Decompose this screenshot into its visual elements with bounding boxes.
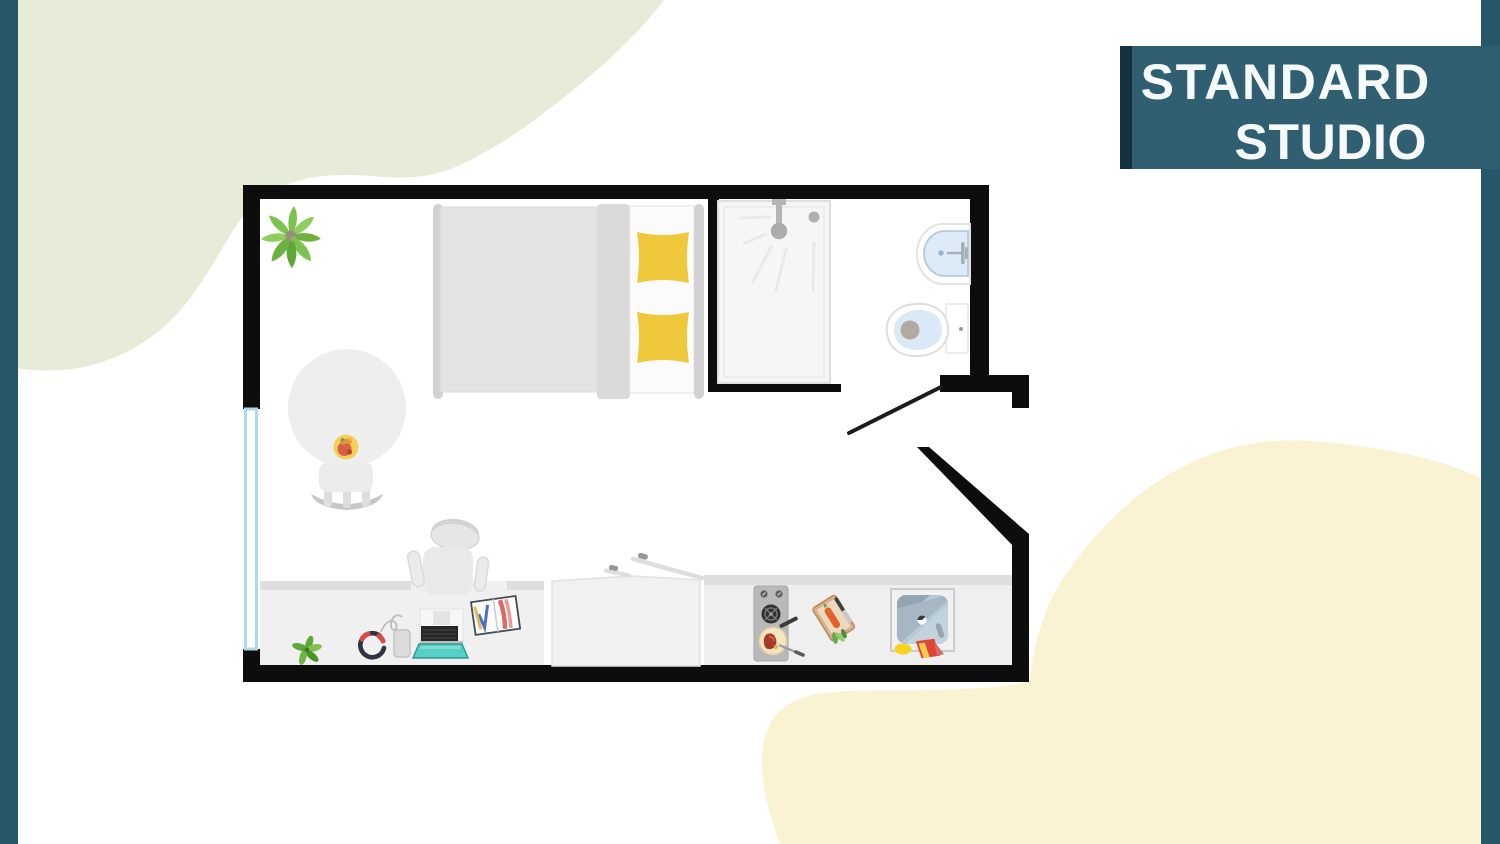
svg-text:STANDARD: STANDARD	[1141, 54, 1431, 110]
svg-text:STUDIO: STUDIO	[1235, 114, 1428, 170]
